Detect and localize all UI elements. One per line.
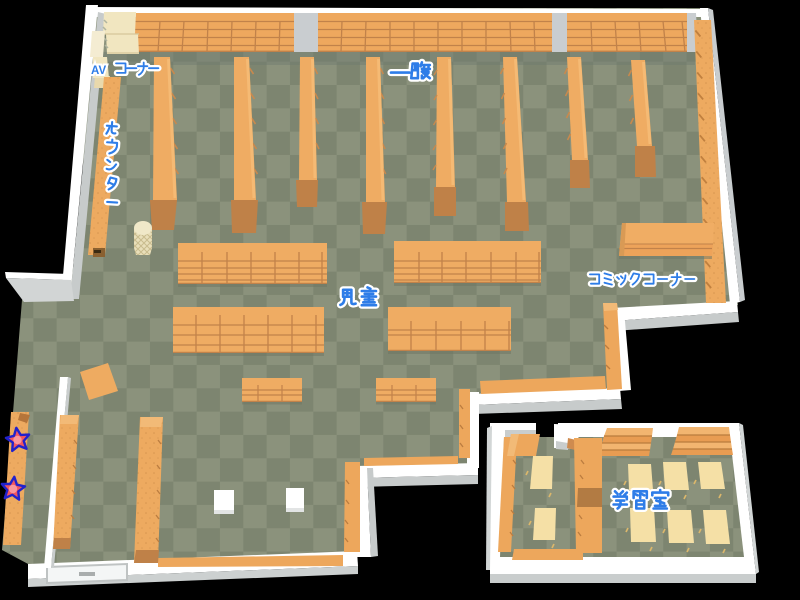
svg-text:AV: AV	[91, 65, 106, 77]
